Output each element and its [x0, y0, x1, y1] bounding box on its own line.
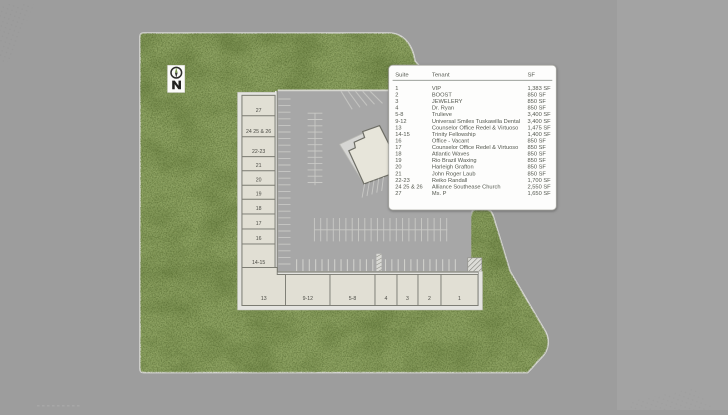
svg-text:4: 4: [385, 296, 388, 302]
svg-text:2: 2: [428, 296, 431, 302]
svg-text:22-23: 22-23: [252, 149, 265, 155]
svg-text:14-15: 14-15: [252, 260, 265, 266]
svg-text:Suite: Suite: [395, 73, 409, 79]
svg-text:24 25 & 26: 24 25 & 26: [246, 129, 271, 135]
svg-text:27: 27: [256, 108, 262, 114]
svg-text:13: 13: [261, 296, 267, 302]
svg-text:SF: SF: [528, 73, 536, 79]
svg-text:18: 18: [256, 206, 262, 212]
svg-text:3: 3: [406, 296, 409, 302]
svg-text:21: 21: [256, 163, 262, 169]
svg-text:16: 16: [256, 236, 262, 242]
svg-text:19: 19: [256, 192, 262, 198]
svg-text:17: 17: [256, 221, 262, 227]
svg-text:5-8: 5-8: [349, 296, 357, 302]
svg-text:1: 1: [458, 296, 461, 302]
svg-text:9-12: 9-12: [303, 296, 313, 302]
svg-text:Tenant: Tenant: [432, 73, 450, 79]
svg-text:20: 20: [256, 178, 262, 184]
